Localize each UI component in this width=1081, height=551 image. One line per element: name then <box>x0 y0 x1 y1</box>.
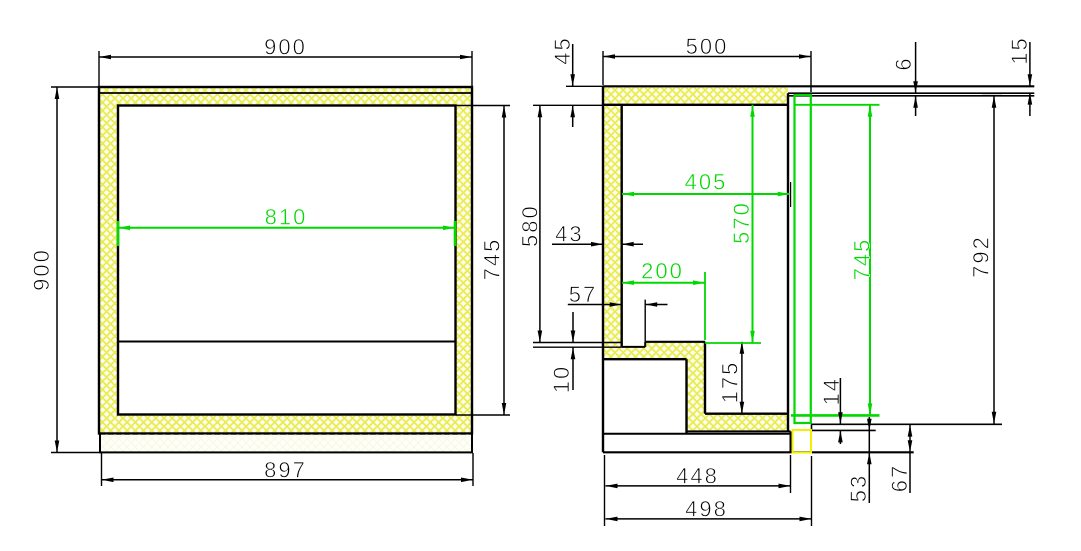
svg-text:580: 580 <box>518 204 543 247</box>
svg-text:67: 67 <box>887 464 912 492</box>
svg-text:792: 792 <box>969 235 994 278</box>
svg-text:810: 810 <box>265 205 308 230</box>
svg-text:10: 10 <box>549 365 574 393</box>
svg-text:43: 43 <box>555 222 583 247</box>
svg-text:745: 745 <box>850 238 875 281</box>
svg-text:405: 405 <box>685 170 728 195</box>
svg-text:175: 175 <box>718 361 743 404</box>
svg-text:448: 448 <box>676 464 719 489</box>
svg-text:53: 53 <box>846 474 871 502</box>
svg-text:900: 900 <box>29 248 54 291</box>
svg-text:900: 900 <box>264 35 307 60</box>
svg-text:15: 15 <box>1007 36 1032 64</box>
svg-text:57: 57 <box>569 282 597 307</box>
svg-text:897: 897 <box>264 458 307 483</box>
svg-text:498: 498 <box>685 497 728 522</box>
svg-text:745: 745 <box>480 238 505 281</box>
svg-text:45: 45 <box>550 36 575 64</box>
svg-text:6: 6 <box>891 56 916 70</box>
svg-text:14: 14 <box>819 377 844 405</box>
svg-text:200: 200 <box>641 259 684 284</box>
svg-text:500: 500 <box>686 34 729 59</box>
svg-text:570: 570 <box>729 201 754 244</box>
